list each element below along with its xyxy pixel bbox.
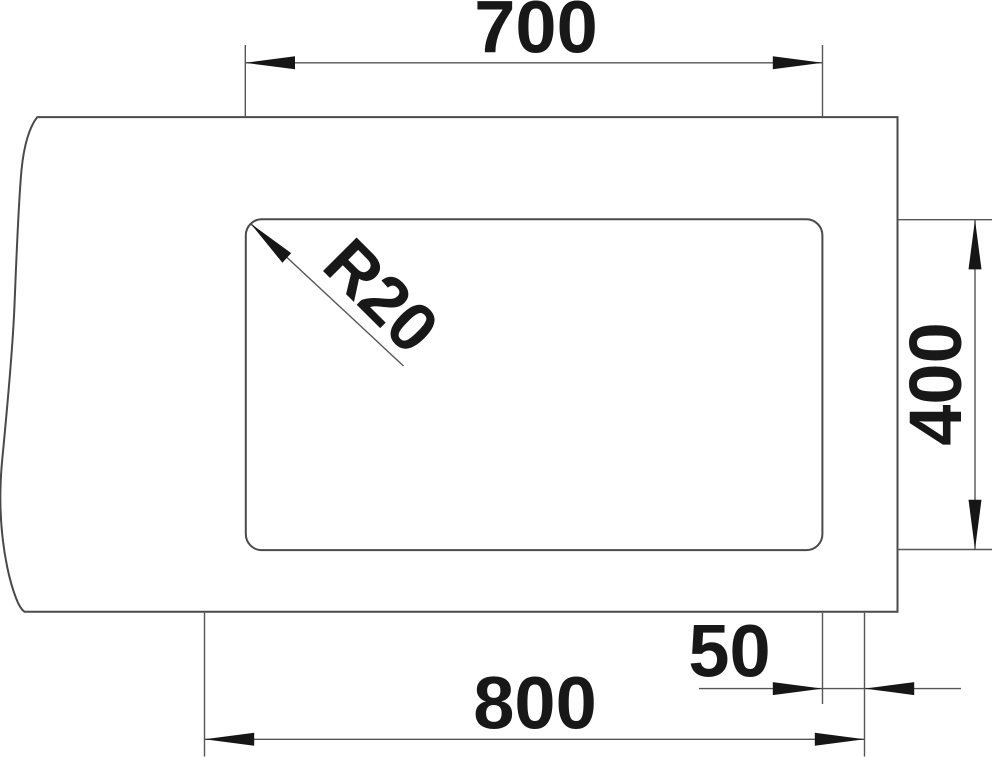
svg-text:50: 50: [688, 610, 770, 693]
svg-text:700: 700: [474, 0, 597, 69]
svg-text:800: 800: [473, 662, 596, 745]
svg-text:400: 400: [894, 322, 977, 445]
